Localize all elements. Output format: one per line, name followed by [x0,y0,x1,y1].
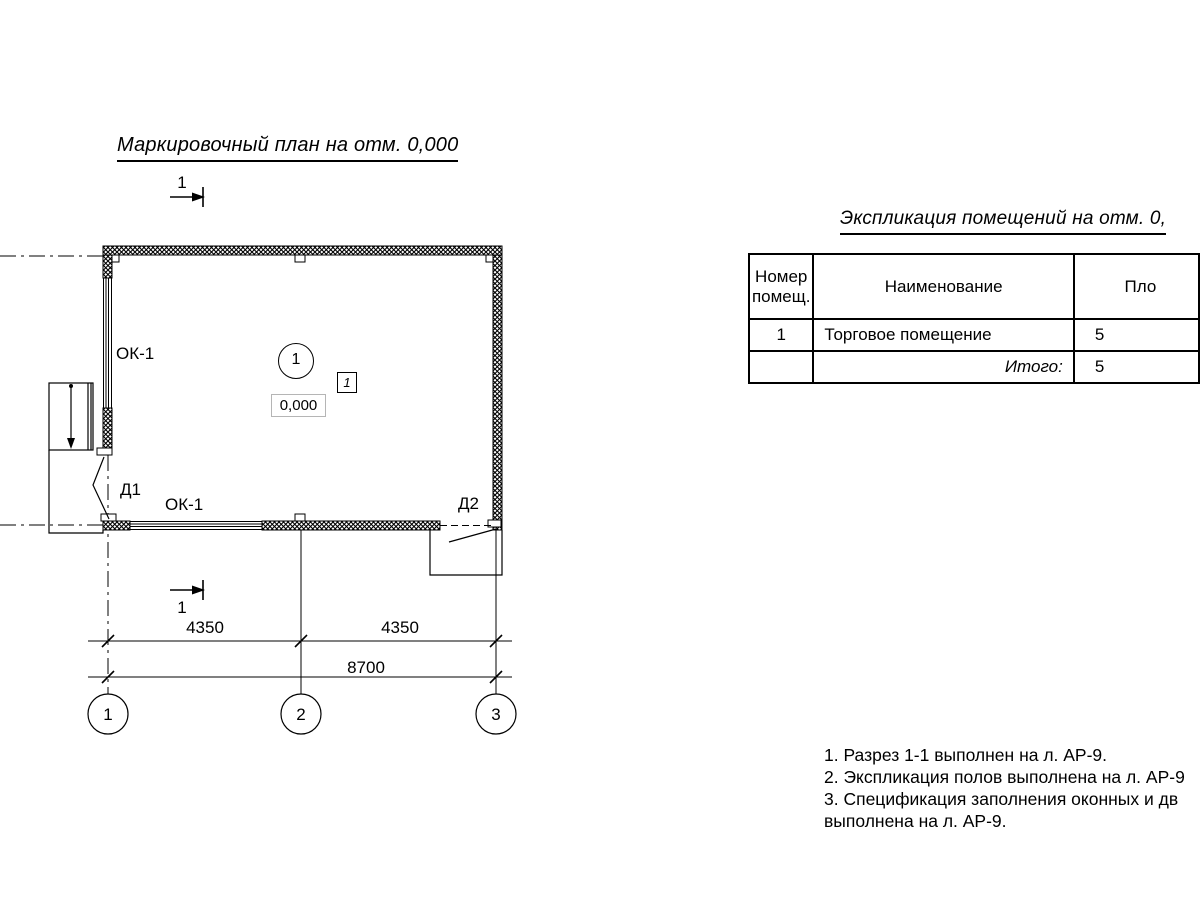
window-left [104,278,112,408]
col-header-area: Пло [1074,254,1199,319]
door1-jamb-cap-top [97,448,112,455]
door-d1-leaf [93,457,109,519]
axis-number-3: 3 [476,705,516,725]
window-bottom-label: ОК-1 [165,495,203,515]
section-label-bottom: 1 [172,598,192,618]
total-label: Итого: [813,351,1073,383]
explication-table: Номер помещ. Наименование Пло 1 Торговое… [748,253,1200,384]
floor-type-mark: 1 [337,372,357,393]
dim-left-label: 4350 [170,618,240,638]
room-number: 1 [284,351,308,369]
wall-notch-top-left [112,255,119,262]
row1-name: Торговое помещение [813,319,1073,351]
note-line-3: 3. Спецификация заполнения оконных и дв [824,788,1185,810]
wall-bottom-mid [262,521,440,530]
dim-right-label: 4350 [365,618,435,638]
dimension-ticks [102,635,502,683]
wall-bottom-left-pier [103,521,130,530]
door-d2-leaf [449,529,496,542]
window-bottom [130,522,262,530]
stair-direction-arrow-icon [67,384,75,449]
axis-number-2: 2 [281,705,321,725]
wall-notch-top-right [486,255,493,262]
wall-top [103,246,502,255]
wall-notch-top-axis2 [295,255,305,262]
window-left-label: ОК-1 [116,344,154,364]
notes-block: 1. Разрез 1-1 выполнен на л. АР-9. 2. Эк… [824,744,1185,832]
wall-right [493,255,502,530]
wall-notch-bottom-axis2 [295,514,305,521]
section-arrow-bottom-icon [170,580,205,600]
note-line-2: 2. Экспликация полов выполнена на л. АР-… [824,766,1185,788]
explication-title: Экспликация помещений на отм. 0, [840,208,1166,235]
door1-label: Д1 [120,480,141,500]
plan-title: Маркировочный план на отм. 0,000 [117,134,458,162]
elevation-mark: 0,000 [271,394,326,417]
col-header-name: Наименование [813,254,1073,319]
total-empty-cell [749,351,813,383]
section-label-top: 1 [172,173,192,193]
axis-number-1: 1 [88,705,128,725]
total-area: 5 [1074,351,1199,383]
porch-landing [49,450,103,533]
row1-area: 5 [1074,319,1199,351]
wall-left-upper [103,255,112,278]
col-header-number: Номер помещ. [749,254,813,319]
door2-label: Д2 [458,494,479,514]
drawing-sheet: Маркировочный план на отм. 0,000 1 1 ОК-… [0,0,1200,900]
dim-total-label: 8700 [331,658,401,678]
note-line-4: выполнена на л. АР-9. [824,810,1185,832]
note-line-1: 1. Разрез 1-1 выполнен на л. АР-9. [824,744,1185,766]
row1-number: 1 [749,319,813,351]
